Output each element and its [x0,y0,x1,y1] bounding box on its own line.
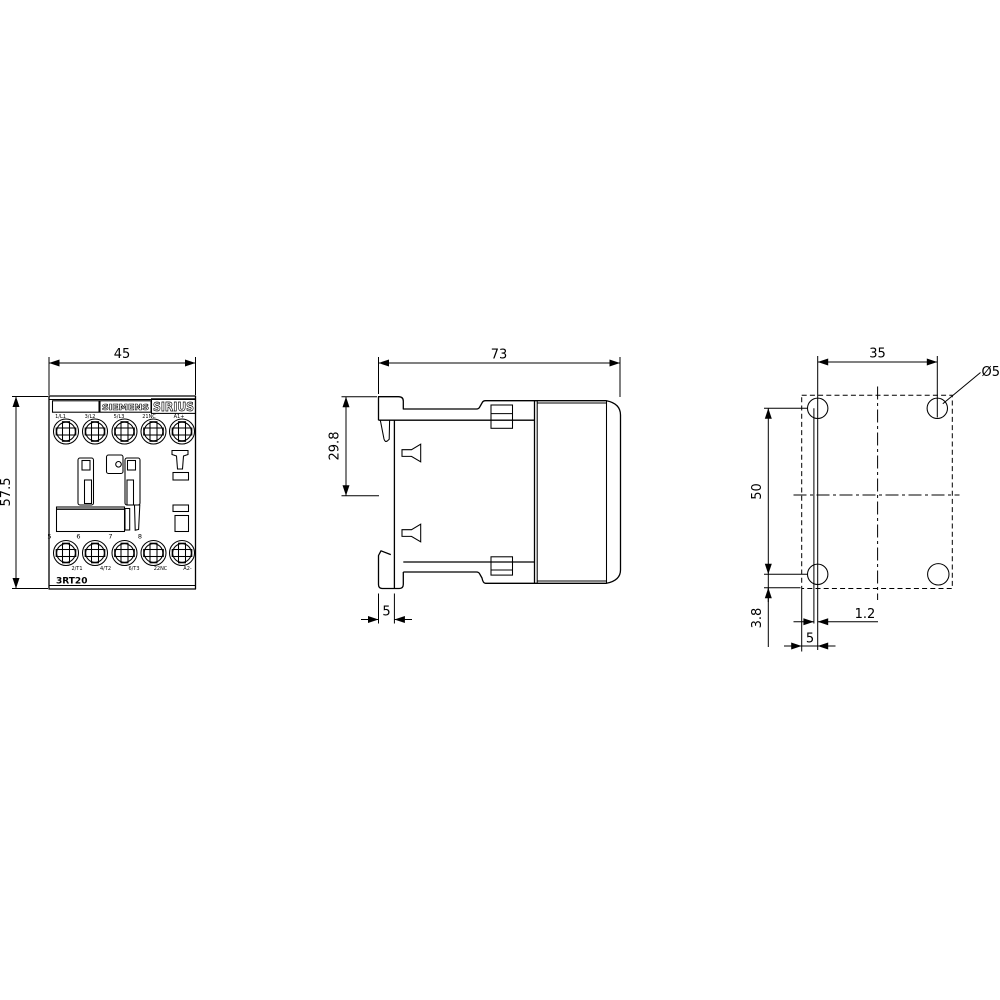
blank-label-box [53,401,100,412]
side-offset-dim-label: 29.8 [328,432,343,461]
outline-path [379,397,535,421]
nameplate-edge [125,509,130,531]
latch-right-slot [127,480,134,505]
position-number: 8 [138,533,142,541]
aux-tab [172,451,188,470]
brand-logo-text: SIEMENS [102,403,149,412]
center-button [107,455,124,474]
position-number: 7 [108,533,112,541]
screw-terminal [141,419,166,444]
device-outline-dashed [802,395,953,588]
latch-left-window [82,461,90,471]
front-view: 45 57.5 SIEMENS SIRIUS 1/L1 3/L2 5/L3 21… [0,347,196,589]
snap-tab [402,444,421,462]
terminal-label: 2/T1 [71,566,82,572]
screw-terminal [170,541,195,566]
latch-right-window [128,461,136,471]
din-claw [380,420,389,441]
side-plate-dim-label: 5 [382,605,390,620]
screw-terminal [141,541,166,566]
snap-tab [402,524,421,542]
side-depth-dim-label: 73 [491,348,508,363]
hole-diameter-label: Ø5 [982,365,1000,380]
screw-terminal [112,419,137,444]
nameplate [57,507,125,532]
terminal-block [491,405,513,428]
aux-window [175,516,189,532]
hole-spacing-v-label: 50 [750,483,765,500]
screw-terminal [83,541,108,566]
terminal-label: 6/T3 [128,566,139,572]
center-button-notch [116,462,122,468]
outline-path [403,572,534,583]
aux-slot [173,473,189,481]
model-label: 3RT20 [56,577,87,587]
series-logo-text: SIRIUS [153,399,194,414]
contactor-side-body [535,401,621,584]
latch-left-slot [85,480,92,504]
edge-offset-v-label: 3.8 [750,608,765,629]
hole-spacing-h-label: 35 [869,347,886,362]
terminal-label: A2- [183,566,192,572]
screw-terminal [54,541,79,566]
position-number: 6 [76,533,80,541]
din-slider [379,551,404,589]
position-number: 5 [47,533,51,541]
edge-offset-h-label: 5 [806,632,814,647]
mounting-view: 35 Ø5 50 3.8 1.2 5 [750,347,1000,652]
screw-terminal [112,541,137,566]
terminal-label: 22NC [154,566,168,572]
side-view: 73 29.8 5 [328,348,621,624]
screw-terminal [83,419,108,444]
latch-right-tail [135,505,140,530]
terminal-label: 4/T2 [100,566,111,572]
aux-slot [173,505,189,512]
terminal-block [491,557,513,575]
screw-terminal [170,419,195,444]
contactor-front-body [49,396,196,589]
screw-terminal [54,419,79,444]
leader-line [943,373,981,404]
rail-offset-label: 1.2 [855,607,876,622]
mounting-hole [928,564,949,585]
dimension-drawing: 45 57.5 SIEMENS SIRIUS 1/L1 3/L2 5/L3 21… [0,0,1000,1000]
front-height-dim-label: 57.5 [0,478,14,507]
front-width-dim-label: 45 [114,347,131,362]
